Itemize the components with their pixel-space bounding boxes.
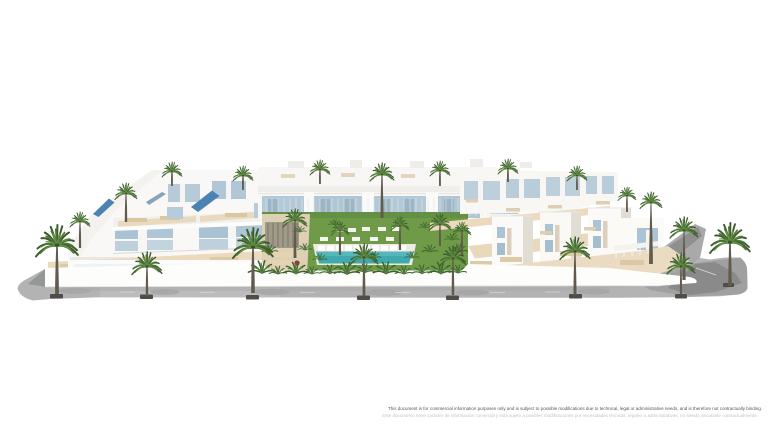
svg-text:Este documento tiene carácter: Este documento tiene carácter de informa… bbox=[382, 413, 758, 418]
svg-text:This document is for commercia: This document is for commercial informat… bbox=[388, 406, 762, 411]
